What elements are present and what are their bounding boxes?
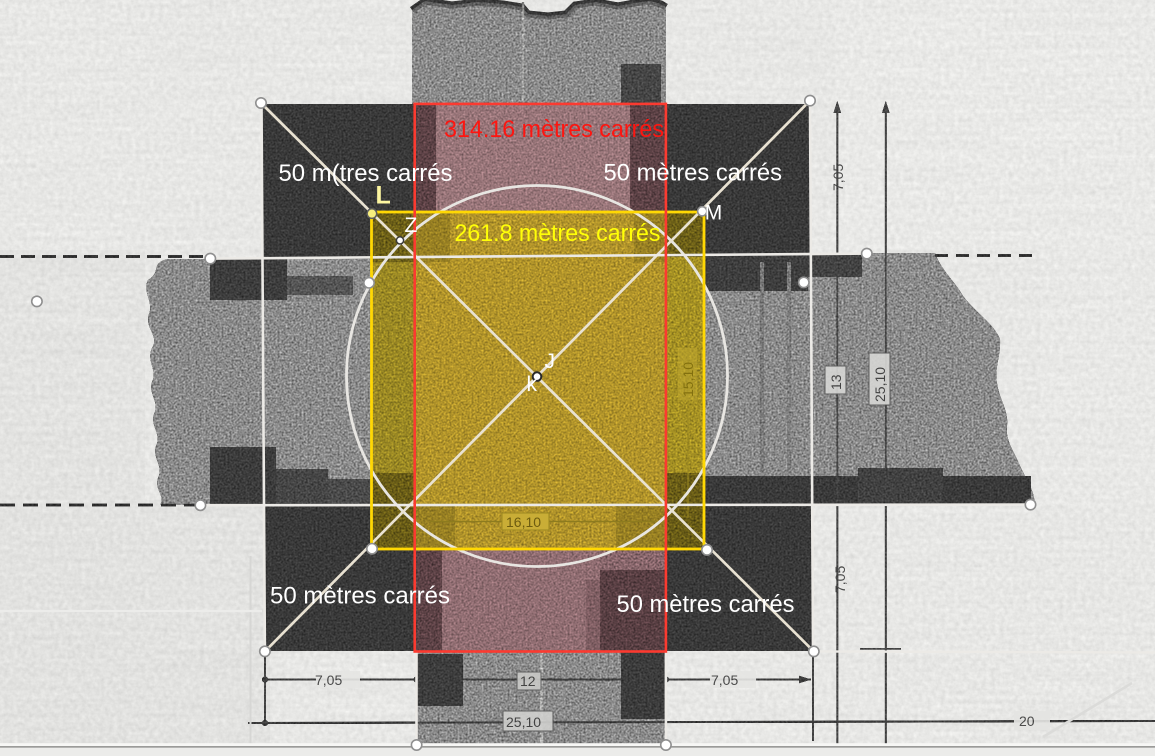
svg-text:314.16 mètres carrés: 314.16 mètres carrés	[444, 116, 664, 143]
svg-text:15,10: 15,10	[680, 362, 696, 397]
svg-text:50 mètres carrés: 50 mètres carrés	[617, 591, 795, 618]
svg-text:50 mètres carrés: 50 mètres carrés	[604, 160, 783, 187]
svg-text:7,05: 7,05	[830, 164, 846, 191]
svg-text:Z: Z	[405, 214, 418, 237]
svg-text:k: k	[527, 373, 538, 396]
svg-text:7,05: 7,05	[315, 672, 342, 688]
svg-text:L: L	[376, 182, 391, 210]
svg-text:20: 20	[1019, 713, 1035, 729]
svg-text:13: 13	[828, 374, 844, 390]
svg-text:7,05: 7,05	[832, 566, 848, 593]
svg-text:50 mètres carrés: 50 mètres carrés	[270, 583, 450, 610]
svg-text:261.8 mètres carrés: 261.8 mètres carrés	[455, 220, 661, 247]
svg-text:J: J	[545, 350, 556, 373]
svg-text:16,10: 16,10	[506, 514, 541, 530]
svg-text:25,10: 25,10	[506, 714, 541, 730]
svg-text:25,10: 25,10	[872, 367, 888, 402]
svg-text:7,05: 7,05	[711, 672, 738, 688]
svg-text:M: M	[705, 202, 723, 225]
svg-text:12: 12	[520, 673, 536, 689]
svg-text:50 m(tres carrés: 50 m(tres carrés	[279, 160, 453, 187]
